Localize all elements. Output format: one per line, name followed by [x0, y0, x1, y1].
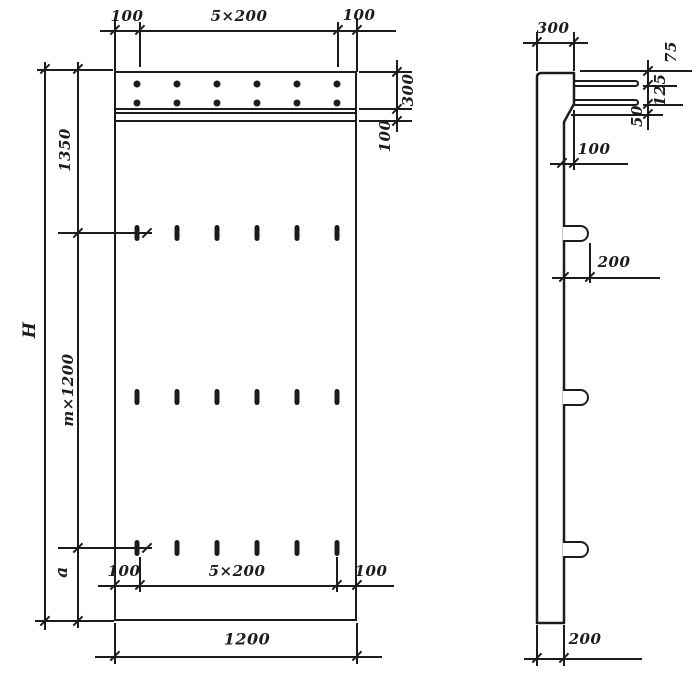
dim-bottom-spacing: 5×200 [209, 562, 266, 580]
dim-bottom-thickness: 200 [569, 630, 602, 648]
dim-strip-height: 300 [399, 74, 417, 107]
extension-line [359, 108, 412, 110]
extension-line [580, 70, 692, 72]
slot [255, 540, 260, 556]
strip-line-1 [116, 108, 355, 110]
dim-line-loop-length [552, 277, 660, 279]
slot [215, 225, 220, 241]
dim-overall-height: H [20, 322, 40, 339]
dim-bottom-left-margin: 100 [108, 562, 141, 580]
slot [215, 389, 220, 405]
protruding-bar [573, 99, 639, 106]
slot [215, 540, 220, 556]
drawing-sheet: 100 5×200 100 300 100 1350 H m×1200 a 10… [0, 0, 700, 700]
anchor-dot [294, 100, 301, 107]
slot [175, 389, 180, 405]
anchor-dot [134, 100, 141, 107]
anchor-dot [254, 81, 261, 88]
dim-side-top-width: 300 [537, 19, 570, 37]
slot [135, 389, 140, 405]
dim-top-right-margin: 100 [343, 6, 376, 24]
lifting-loop [563, 225, 589, 242]
anchor-dot [174, 100, 181, 107]
slot [175, 540, 180, 556]
slot [175, 225, 180, 241]
dim-step: 100 [578, 140, 611, 158]
slot [295, 225, 300, 241]
dim-top-spacing: 5×200 [211, 7, 268, 25]
slot [335, 225, 340, 241]
dim-line-overall-height [44, 62, 46, 630]
extension-line [536, 32, 538, 71]
slot [255, 389, 260, 405]
dim-bar-top-offset: 75 [662, 41, 680, 63]
slot [135, 540, 140, 556]
lifting-loop [563, 389, 589, 406]
dim-module: m×1200 [59, 353, 77, 426]
dim-line-overall-width [95, 656, 382, 658]
strip-line-3 [116, 120, 355, 122]
anchor-dot [214, 100, 221, 107]
slot [135, 225, 140, 241]
dim-top-left-margin: 100 [111, 7, 144, 25]
anchor-dot [334, 100, 341, 107]
anchor-dot [134, 81, 141, 88]
anchor-dot [254, 100, 261, 107]
dim-loop-length: 200 [598, 253, 631, 271]
anchor-dot [214, 81, 221, 88]
slot [255, 225, 260, 241]
dim-line-left-segments [77, 62, 79, 628]
slot [295, 389, 300, 405]
dim-line-top [100, 30, 396, 32]
dim-line-bottom-spacing [98, 585, 394, 587]
strip-line-2 [116, 112, 355, 114]
anchor-dot [294, 81, 301, 88]
slot [335, 389, 340, 405]
slot [335, 540, 340, 556]
extension-line [573, 32, 575, 71]
protruding-bar [573, 80, 639, 87]
front-view-panel-outline [114, 71, 357, 621]
slot [295, 540, 300, 556]
dim-bar-between: 125 [651, 74, 669, 107]
dim-left-lower: a [52, 566, 72, 578]
lifting-loop [563, 541, 589, 558]
dim-overall-width: 1200 [224, 630, 271, 649]
anchor-dot [334, 81, 341, 88]
anchor-dot [174, 81, 181, 88]
dim-bottom-right-margin: 100 [355, 562, 388, 580]
dim-left-upper: 1350 [56, 128, 74, 172]
dim-line-thickness [524, 658, 642, 660]
